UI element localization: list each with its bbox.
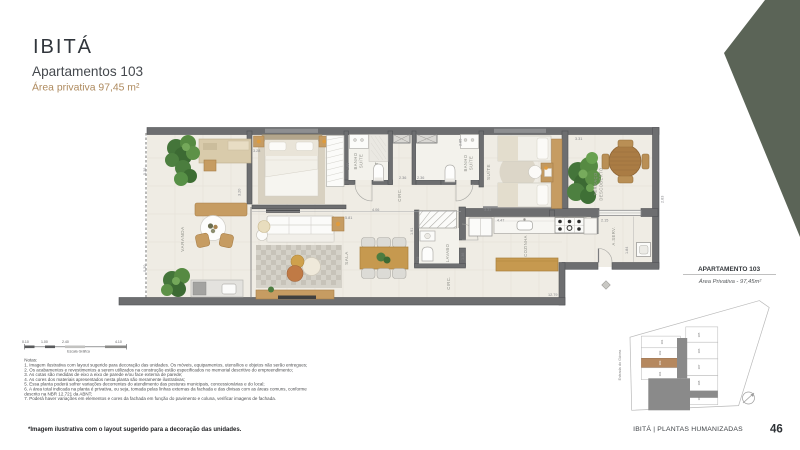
svg-text:Apartamentos 103: Apartamentos 103 (32, 64, 143, 79)
svg-text:TERRAÇO: TERRAÇO (593, 172, 598, 196)
svg-text:LAVABO: LAVABO (445, 243, 450, 262)
svg-text:2.36: 2.36 (399, 176, 406, 180)
svg-text:4.47: 4.47 (497, 219, 504, 223)
svg-text:IBITÁ: IBITÁ (33, 35, 93, 58)
svg-text:5.81: 5.81 (345, 216, 352, 220)
svg-text:5.36: 5.36 (143, 168, 147, 175)
svg-text:2.83: 2.83 (661, 196, 665, 203)
svg-text:4.10: 4.10 (115, 340, 122, 344)
svg-text:DESCOBERTO: DESCOBERTO (599, 167, 604, 201)
svg-text:Área Privativa - 97,45m²: Área Privativa - 97,45m² (698, 278, 763, 285)
svg-text:1.86: 1.86 (346, 163, 350, 170)
svg-text:BANHO: BANHO (353, 152, 358, 169)
svg-text:3.31: 3.31 (575, 137, 582, 141)
svg-text:0.30: 0.30 (143, 265, 147, 272)
svg-text:APARTAMENTO 103: APARTAMENTO 103 (698, 266, 761, 273)
svg-text:3.20: 3.20 (238, 189, 242, 196)
svg-text:1.91: 1.91 (410, 228, 414, 235)
svg-text:0.10: 0.10 (22, 340, 29, 344)
svg-text:107: 107 (697, 364, 701, 369)
svg-text:SALA: SALA (344, 251, 349, 265)
svg-text:106: 106 (697, 348, 701, 353)
svg-text:CIRC.: CIRC. (446, 276, 451, 289)
svg-text:108: 108 (697, 380, 701, 385)
svg-text:1.84: 1.84 (625, 247, 629, 254)
svg-text:COZINHA: COZINHA (523, 235, 528, 257)
svg-text:104: 104 (658, 371, 662, 376)
svg-text:SUÍTE: SUÍTE (469, 156, 474, 170)
svg-text:Área privativa 97,45 m²: Área privativa 97,45 m² (32, 81, 140, 94)
svg-text:2.36: 2.36 (417, 176, 424, 180)
svg-text:2.15: 2.15 (601, 219, 608, 223)
svg-text:Estrada do Gávea: Estrada do Gávea (618, 349, 622, 380)
svg-text:1.00: 1.00 (41, 340, 48, 344)
svg-text:Escala Gráfica: Escala Gráfica (67, 350, 90, 354)
svg-text:103: 103 (658, 360, 662, 365)
svg-text:102: 102 (658, 350, 662, 355)
svg-text:A.SERV.: A.SERV. (611, 227, 616, 246)
svg-text:7. Poderá haver variações em e: 7. Poderá haver variações em elementos e… (24, 396, 276, 401)
svg-text:1.75: 1.75 (416, 257, 420, 264)
svg-text:IBITÁ | PLANTAS HUMANIZADAS: IBITÁ | PLANTAS HUMANIZADAS (633, 424, 743, 433)
svg-text:2.85: 2.85 (459, 139, 463, 146)
svg-text:SUÍTE: SUÍTE (359, 154, 364, 168)
svg-text:VARANDA: VARANDA (180, 226, 185, 252)
svg-text:2.40: 2.40 (62, 340, 69, 344)
svg-text:CIRC.: CIRC. (397, 188, 402, 201)
svg-text:12.79: 12.79 (548, 293, 558, 297)
svg-text:BANHO: BANHO (463, 154, 468, 171)
svg-text:*Imagem ilustrativa com o layo: *Imagem ilustrativa com o layout sugerid… (28, 427, 242, 433)
svg-text:101: 101 (660, 339, 664, 344)
svg-text:3.28: 3.28 (253, 149, 260, 153)
svg-text:SUÍTE: SUÍTE (485, 164, 491, 180)
svg-text:3.31: 3.31 (484, 208, 491, 212)
svg-text:46: 46 (770, 424, 783, 436)
svg-text:105: 105 (697, 332, 701, 337)
svg-text:1.36: 1.36 (461, 253, 465, 260)
